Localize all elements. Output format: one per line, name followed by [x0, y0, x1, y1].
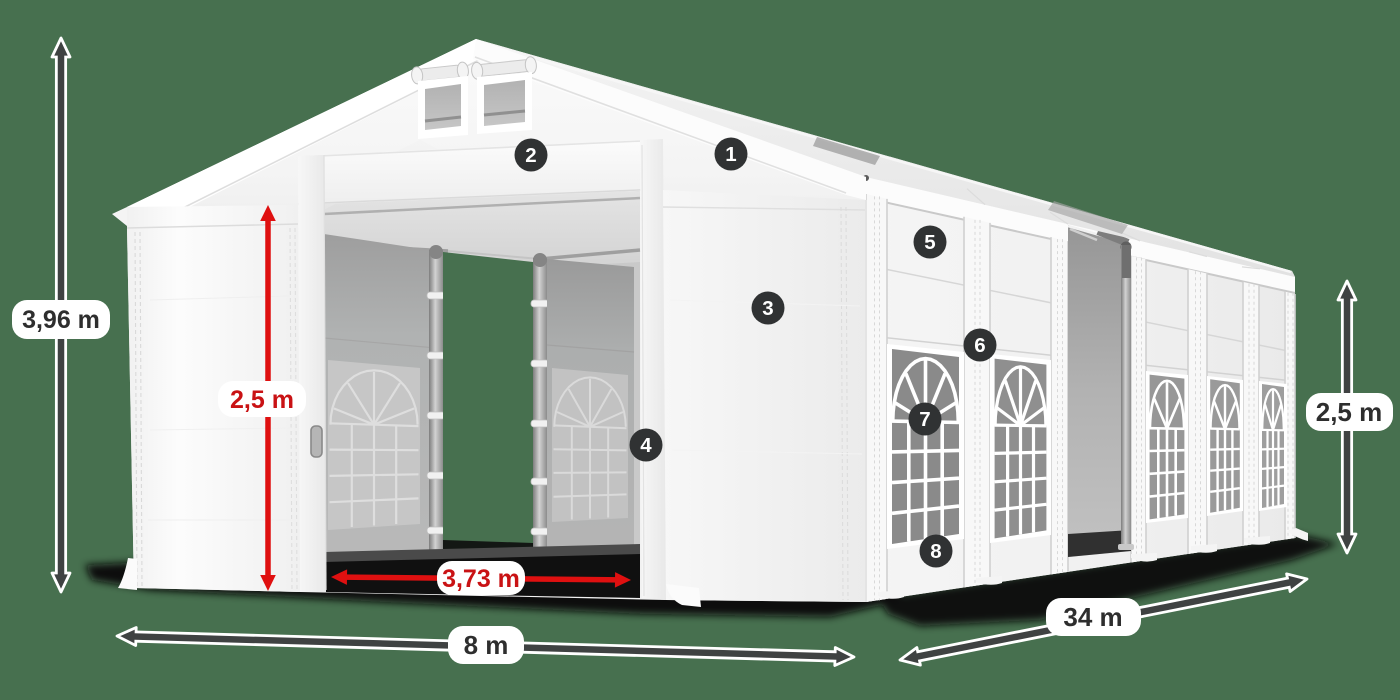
svg-text:2,5 m: 2,5 m	[230, 386, 294, 414]
svg-text:3,73 m: 3,73 m	[442, 565, 520, 593]
svg-text:4: 4	[640, 434, 652, 457]
svg-text:34 m: 34 m	[1063, 602, 1122, 632]
svg-text:8: 8	[930, 540, 941, 563]
svg-text:8 m: 8 m	[464, 630, 509, 660]
svg-text:2: 2	[525, 144, 536, 167]
svg-text:3,96 m: 3,96 m	[22, 306, 100, 334]
svg-text:2,5 m: 2,5 m	[1316, 397, 1383, 427]
svg-text:5: 5	[924, 231, 935, 254]
svg-text:3: 3	[762, 297, 773, 320]
svg-text:1: 1	[725, 143, 736, 166]
svg-text:7: 7	[919, 408, 930, 431]
svg-text:6: 6	[974, 334, 985, 357]
